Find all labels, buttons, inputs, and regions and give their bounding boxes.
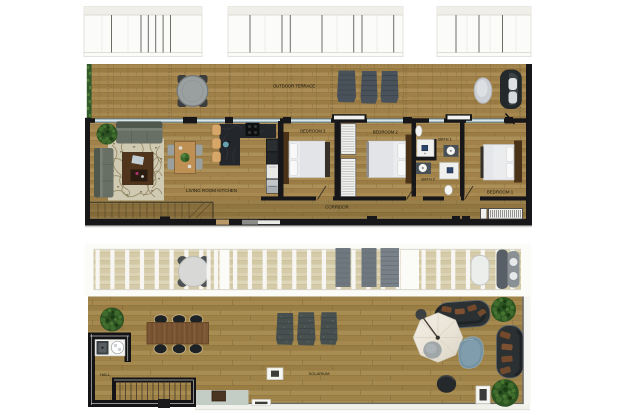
svg-text:LIVING ROOM KITCHEN: LIVING ROOM KITCHEN (186, 188, 237, 193)
svg-text:BATH 2: BATH 2 (421, 177, 435, 182)
svg-text:OUTDOOR TERRACE: OUTDOOR TERRACE (273, 83, 315, 88)
svg-text:BEDROOM 2: BEDROOM 2 (373, 129, 399, 134)
svg-text:BEDROOM 1: BEDROOM 1 (487, 190, 514, 195)
svg-text:SOLARIUM: SOLARIUM (309, 371, 330, 376)
svg-text:CORRIDOR: CORRIDOR (325, 205, 348, 210)
svg-text:BEDROOM 3: BEDROOM 3 (300, 129, 326, 134)
svg-text:BATH 1: BATH 1 (438, 136, 452, 141)
svg-text:HALL: HALL (100, 372, 111, 377)
